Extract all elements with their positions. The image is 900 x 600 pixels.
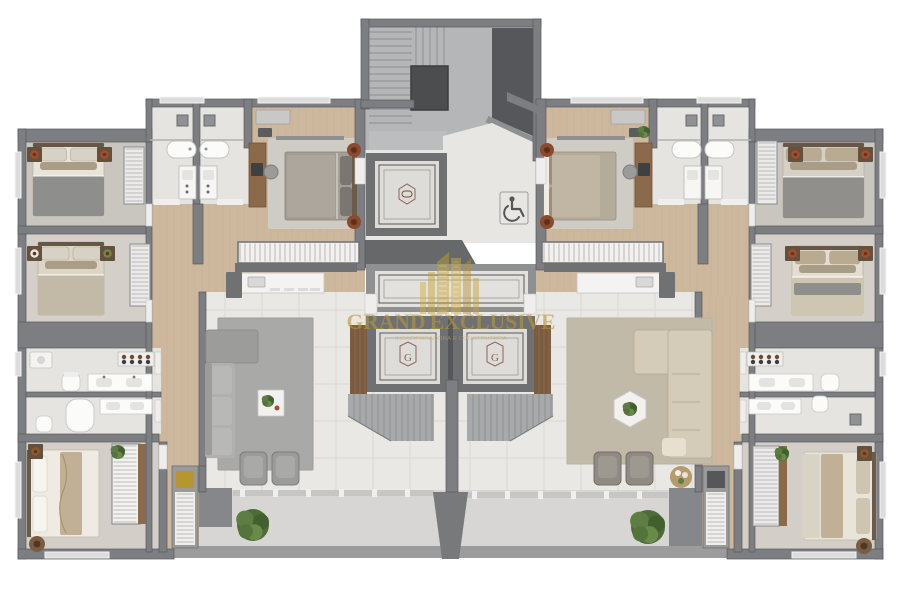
svg-text:INCORPORADORA E CONSTRUTORA: INCORPORADORA E CONSTRUTORA	[395, 336, 507, 342]
svg-text:G: G	[491, 352, 499, 364]
svg-text:GRAND EXCLUSIVE: GRAND EXCLUSIVE	[347, 309, 556, 334]
svg-text:G: G	[404, 352, 412, 364]
